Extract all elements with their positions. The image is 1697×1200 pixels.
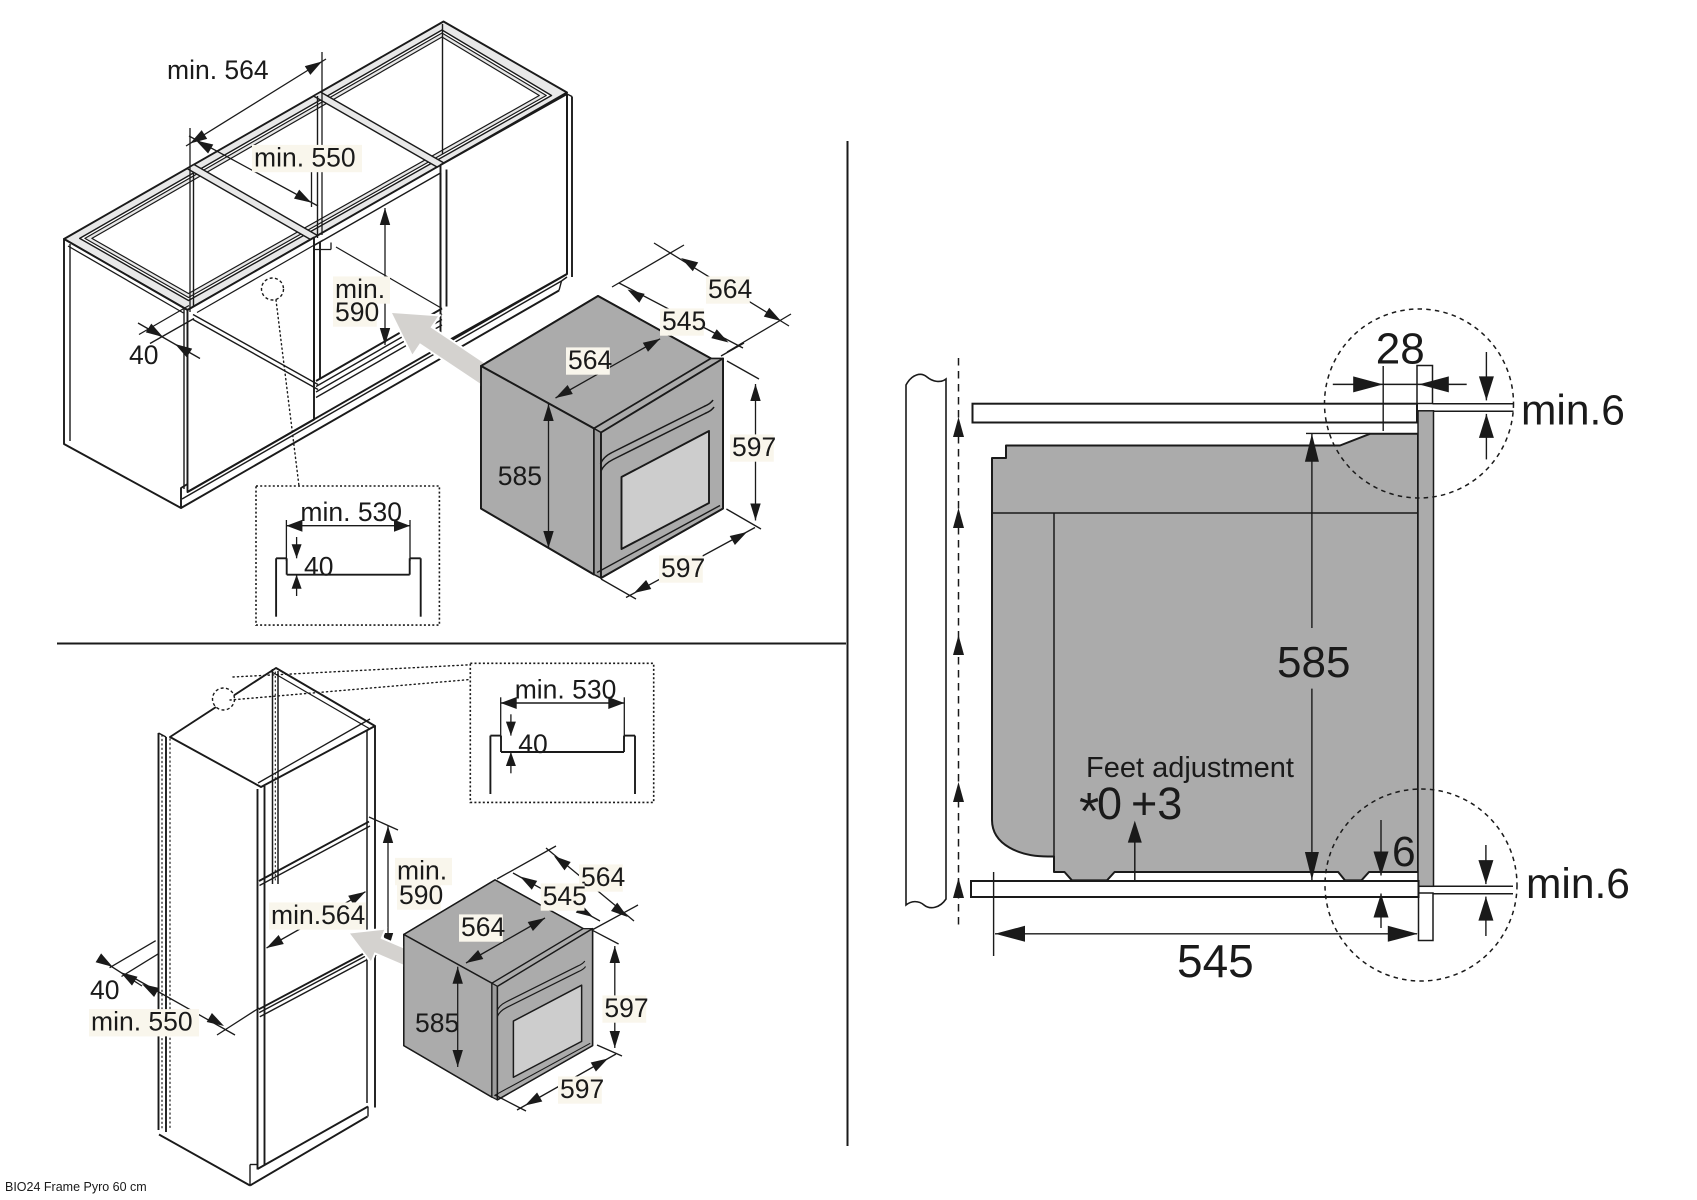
- svg-text:6: 6: [1392, 829, 1416, 876]
- svg-text:545: 545: [662, 306, 706, 336]
- svg-text:min. 530: min. 530: [515, 674, 617, 704]
- svg-text:+3: +3: [1131, 778, 1182, 829]
- svg-text:590: 590: [399, 880, 443, 910]
- svg-text:545: 545: [1177, 935, 1254, 987]
- svg-text:597: 597: [560, 1074, 604, 1104]
- svg-text:min. 564: min. 564: [167, 55, 269, 85]
- svg-text:40: 40: [518, 729, 547, 759]
- svg-text:0: 0: [1097, 778, 1122, 829]
- svg-text:585: 585: [415, 1008, 459, 1038]
- svg-text:40: 40: [129, 340, 158, 370]
- svg-text:min. 550: min. 550: [254, 143, 356, 173]
- svg-text:BIO24 Frame Pyro 60 cm: BIO24 Frame Pyro 60 cm: [5, 1180, 147, 1194]
- svg-text:597: 597: [604, 993, 648, 1023]
- svg-text:597: 597: [732, 432, 776, 462]
- svg-text:40: 40: [90, 975, 119, 1005]
- svg-text:28: 28: [1376, 325, 1425, 374]
- svg-text:590: 590: [335, 297, 379, 327]
- svg-text:min.564: min.564: [271, 900, 365, 930]
- svg-text:545: 545: [543, 881, 587, 911]
- svg-text:585: 585: [1277, 638, 1350, 687]
- svg-text:min. 550: min. 550: [91, 1007, 193, 1037]
- svg-text:min.6: min.6: [1521, 388, 1625, 435]
- svg-text:40: 40: [304, 552, 333, 582]
- svg-text:564: 564: [461, 912, 505, 942]
- svg-text:585: 585: [498, 461, 542, 491]
- svg-text:min.6: min.6: [1526, 861, 1630, 908]
- svg-text:597: 597: [661, 553, 705, 583]
- svg-text:564: 564: [708, 274, 752, 304]
- svg-text:564: 564: [581, 862, 625, 892]
- svg-text:564: 564: [568, 345, 612, 375]
- svg-text:min. 530: min. 530: [300, 497, 402, 527]
